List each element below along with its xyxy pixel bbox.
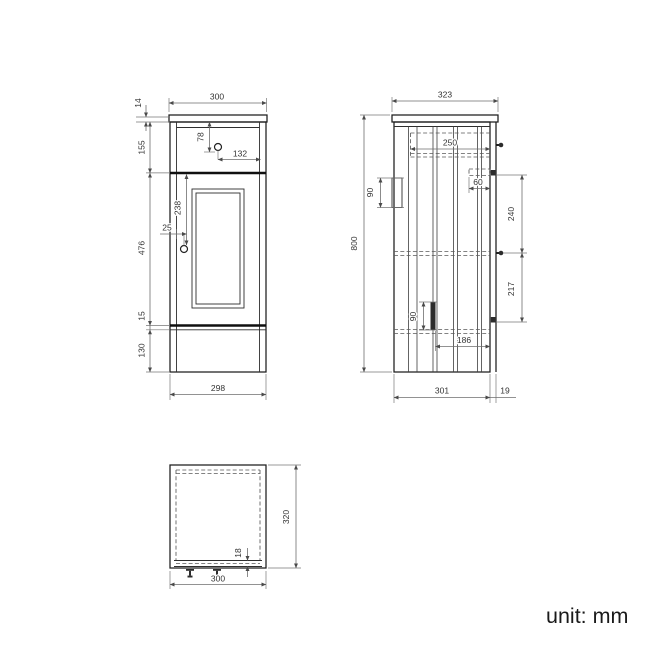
- dim-side-lower-bracket: 90: [408, 312, 418, 322]
- plan-view: 18 300 320: [170, 465, 301, 589]
- dim-side-lower-depth: 186: [457, 335, 471, 345]
- dim-front-counter-width: 300: [210, 92, 224, 102]
- side-lower-bracket: [431, 302, 436, 330]
- side-view: 250 60 240 217 90 90: [349, 90, 527, 404]
- dim-side-hinge-to-shelf: 240: [506, 207, 516, 221]
- dim-side-drawer-depth: 250: [443, 138, 457, 148]
- dim-front-knob-right: 132: [233, 149, 247, 159]
- front-countertop: [169, 115, 267, 122]
- dim-front-counter-thickness: 14: [133, 98, 143, 108]
- dim-front-plinth-height: 130: [137, 343, 147, 357]
- dim-front-doorknob-top: 238: [173, 201, 183, 215]
- front-view: 300 14 155 476 15 130 78 132 238 25: [133, 92, 267, 401]
- dim-side-door-thickness: 19: [500, 386, 510, 396]
- front-door-knob: [181, 246, 188, 253]
- side-top-hinge: [469, 169, 490, 176]
- dim-front-doorknob-edge: 25: [162, 223, 172, 233]
- dim-side-overall-height: 800: [349, 236, 359, 250]
- dim-side-bracket-height: 90: [365, 188, 375, 198]
- plan-carcass: [170, 465, 266, 568]
- dim-side-carcass-depth: 301: [435, 386, 449, 396]
- dim-side-counter-depth: 323: [438, 90, 452, 100]
- front-door-panel: [192, 189, 244, 308]
- dim-plan-depth: 320: [281, 510, 291, 524]
- dim-plan-panel-thickness: 18: [233, 548, 243, 558]
- dim-front-rail-gap: 15: [137, 311, 147, 321]
- dim-front-knob-top: 78: [196, 132, 206, 142]
- dim-plan-width: 300: [211, 574, 225, 584]
- dim-front-drawer-height: 155: [137, 140, 147, 154]
- dim-front-door-height: 476: [137, 241, 147, 255]
- unit-label: unit: mm: [546, 604, 628, 629]
- foot-left: [186, 569, 194, 578]
- side-bottom-hinge: [491, 317, 496, 323]
- front-drawer-knob: [215, 144, 222, 151]
- drawing-sheet: 300 14 155 476 15 130 78 132 238 25: [0, 0, 650, 650]
- dim-side-shelf-to-hinge: 217: [506, 282, 516, 296]
- side-countertop: [392, 115, 498, 122]
- technical-drawing: 300 14 155 476 15 130 78 132 238 25: [0, 0, 650, 650]
- dim-side-hinge-plate: 60: [473, 177, 483, 187]
- dim-front-carcass-width: 298: [211, 383, 225, 393]
